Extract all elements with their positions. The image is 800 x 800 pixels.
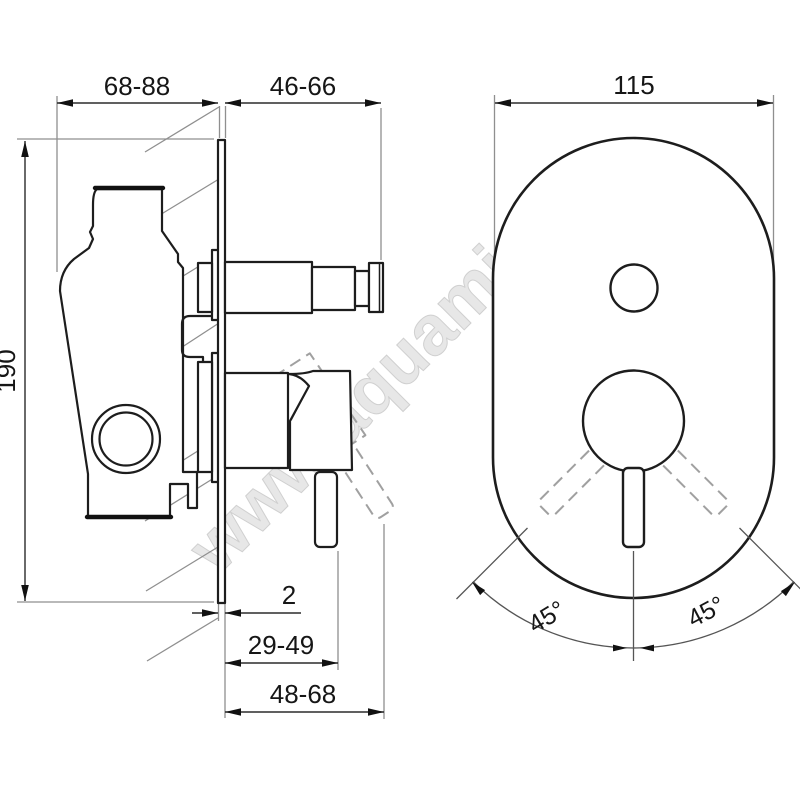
mixer-technical-drawing: www.aquamir.ru <box>0 0 800 800</box>
lever-base <box>583 371 684 472</box>
drawing-canvas: www.aquamir.ru <box>0 0 800 800</box>
front-view <box>457 138 800 661</box>
dim-angle-right: 45° <box>683 591 730 633</box>
cover-plate-edge <box>218 140 225 603</box>
dim-angle-left: 45° <box>523 595 570 638</box>
inlet-port-inner <box>100 413 153 466</box>
dim-top-middle: 46-66 <box>270 71 337 101</box>
diverter-shaft <box>225 262 383 313</box>
dim-top-left: 68-88 <box>104 71 171 101</box>
dim-bottom-wide: 48-68 <box>270 679 337 709</box>
dim-bottom-middle: 29-49 <box>248 630 315 660</box>
lever-head-side <box>289 371 352 470</box>
dim-plate-thickness: 2 <box>282 580 296 610</box>
dim-top-right: 115 <box>613 70 654 100</box>
diverter-knob <box>611 265 658 312</box>
lever-stem-side <box>315 472 337 547</box>
lever-stem-front <box>623 468 644 547</box>
dim-left-vertical: 190 <box>0 349 21 392</box>
shaft-flanges <box>198 250 219 482</box>
